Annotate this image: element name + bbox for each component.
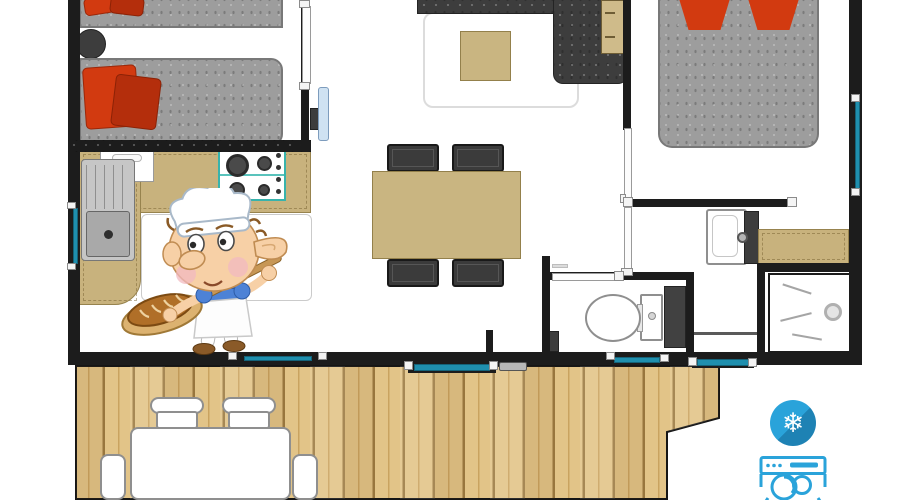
door-bedroom-twin [302, 6, 311, 84]
floor-plan-canvas: ❄ [0, 0, 900, 500]
door-corridor [624, 207, 632, 271]
wall-living-bedroom2 [623, 0, 631, 130]
wall-wc-right [686, 272, 694, 356]
snowflake-glyph: ❄ [770, 400, 816, 446]
dining-chair [387, 144, 439, 172]
window-glass [73, 208, 78, 264]
pillow [110, 73, 162, 130]
double-bed [658, 0, 819, 148]
window-cap [67, 202, 76, 209]
outdoor-chair-side [100, 454, 126, 500]
door-post [787, 197, 797, 207]
door-hardware [318, 352, 327, 360]
wall-wc-left [542, 256, 550, 356]
outdoor-table [130, 427, 291, 500]
round-nightstand [76, 29, 106, 59]
outdoor-chair-side [292, 454, 318, 500]
hob-knob [276, 153, 281, 158]
dining-table [372, 171, 521, 259]
chef-hat [168, 188, 253, 238]
door-hardware [489, 361, 498, 370]
dishwasher-icon [758, 456, 828, 500]
shower-screen [690, 332, 758, 335]
window-bedroom2 [845, 94, 863, 196]
wall-shower-left [757, 263, 765, 358]
wall-washroom-shower [757, 263, 862, 272]
window-glass [855, 101, 860, 189]
door-hinge [299, 0, 310, 8]
sliding-door-panel [414, 364, 490, 371]
shower-drain [824, 303, 842, 321]
dining-chair [452, 144, 504, 172]
window-cap [851, 188, 860, 196]
dining-chair [387, 259, 439, 287]
baker-elf-mascot [112, 188, 304, 358]
faucet [737, 232, 748, 243]
air-conditioning-icon: ❄ [770, 400, 816, 446]
wall-corridor [627, 199, 794, 207]
tv-screen [318, 87, 329, 141]
hob-knob [276, 177, 281, 182]
door-swing-mark [552, 264, 568, 268]
door-hardware [404, 361, 413, 370]
hob-knob [276, 165, 281, 170]
burner-medium [257, 156, 272, 171]
door-hardware [606, 352, 615, 360]
entry-step [499, 362, 527, 371]
window-cap [851, 94, 860, 102]
desk-notch [605, 12, 615, 14]
door-hardware [660, 354, 669, 362]
window-kitchen [63, 202, 81, 270]
water-heater-cabinet [664, 286, 686, 348]
door-hinge [614, 271, 624, 281]
door-hinge [299, 82, 310, 90]
flush-button [648, 312, 656, 320]
elf-ear [254, 238, 287, 259]
coffee-table [460, 31, 511, 81]
toilet-bowl [585, 294, 641, 342]
sliding-door-panel [697, 359, 749, 366]
door-wc [552, 273, 616, 281]
sliding-door-panel [614, 357, 660, 363]
washbasin-bowl [712, 215, 738, 257]
desk-notch [605, 36, 615, 38]
dining-chair [452, 259, 504, 287]
wall-left [68, 0, 80, 365]
window-cap [67, 263, 76, 270]
door-hardware [688, 357, 697, 366]
washroom-counter [758, 229, 849, 264]
door-hardware [748, 358, 757, 367]
corner-sofa-top [417, 0, 555, 14]
door-post [623, 197, 633, 207]
wall-bedroom-kitchen [68, 140, 311, 152]
burner-large [226, 154, 249, 177]
